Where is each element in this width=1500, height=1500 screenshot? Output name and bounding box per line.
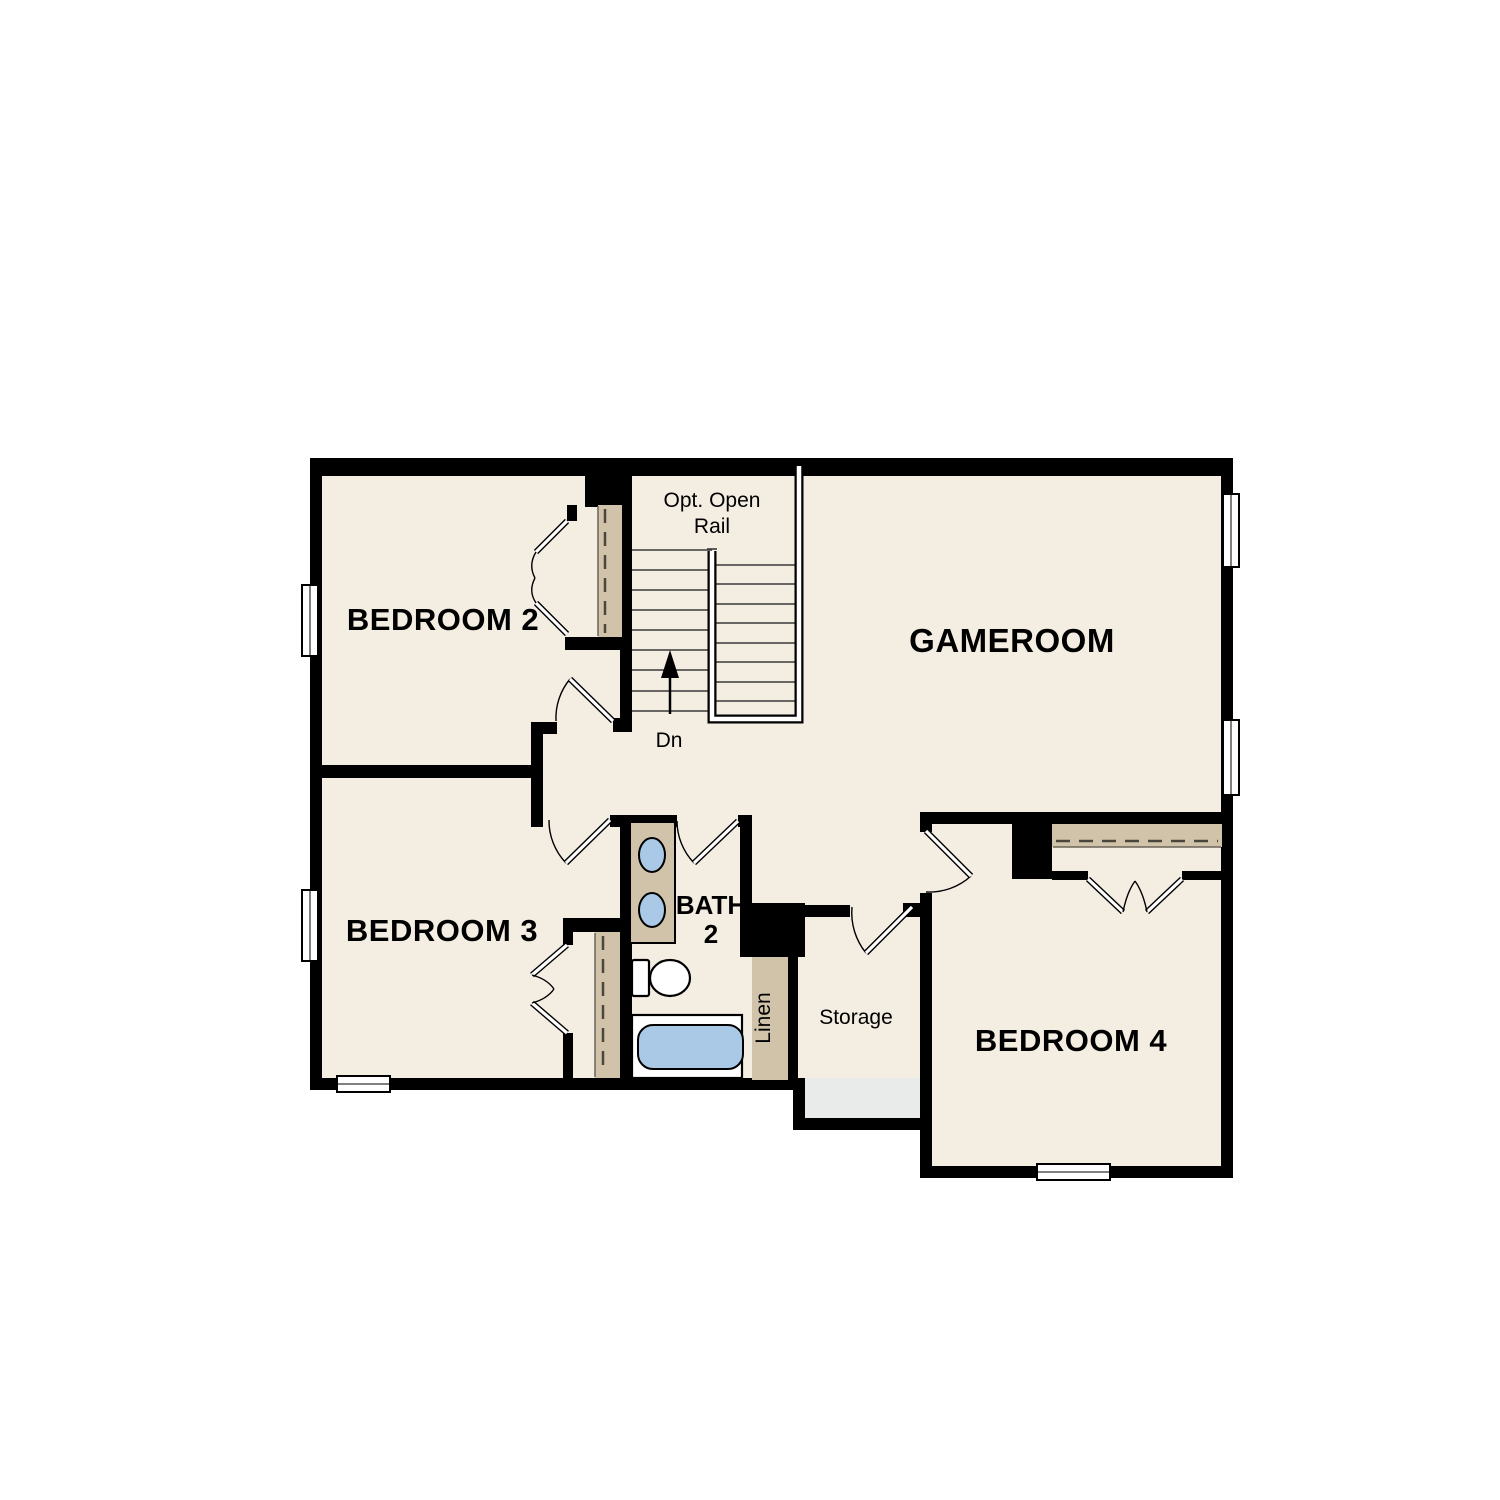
bedroom3-closet-shelf	[595, 932, 620, 1078]
window-bedroom3-left	[302, 890, 318, 961]
toilet-bowl	[650, 960, 690, 996]
wall-stair-west-lower	[620, 637, 632, 732]
wall-bedroom4-closet-column	[1012, 819, 1052, 879]
wall-storage-west-low	[793, 1078, 805, 1130]
wall-bedroom3-closet-jamb-bottom	[563, 1033, 573, 1078]
window-gameroom-right-upper	[1223, 494, 1239, 567]
toilet-tank	[632, 960, 649, 996]
window-bedroom4-bottom	[1037, 1164, 1110, 1180]
wall-bedroom2-3-divider	[310, 765, 543, 778]
stairs-direction-label: Dn	[656, 729, 683, 752]
wall-storage-top	[795, 905, 850, 917]
wall-top	[310, 458, 1233, 476]
gameroom-label: GAMEROOM	[909, 622, 1115, 659]
wall-bath-top-right	[738, 815, 752, 827]
stairs-note-line2: Rail	[694, 515, 730, 538]
bedroom4-closet-shelf	[1052, 824, 1222, 847]
floorplan-canvas: BEDROOM 2 BEDROOM 3 GAMEROOM BEDROOM 4 B…	[0, 0, 1500, 1500]
sink-top	[639, 838, 665, 872]
bedroom3-label: BEDROOM 3	[346, 913, 538, 948]
bath2-label-line2: 2	[704, 919, 718, 949]
bath2-label-line1: BATH	[676, 890, 746, 920]
wall-bedroom2-closet-bottom	[565, 637, 632, 650]
floor-storage-gray-patch	[805, 1078, 920, 1118]
storage-label: Storage	[819, 1006, 893, 1029]
linen-label: Linen	[752, 992, 775, 1043]
wall-hall-west	[531, 722, 543, 827]
wall-hall-jog	[543, 722, 557, 734]
wall-bedroom4-closet-stub-left	[1052, 871, 1088, 880]
window-bedroom3-bottom	[337, 1076, 390, 1092]
window-gameroom-right-lower	[1223, 720, 1239, 795]
bedroom2-label: BEDROOM 2	[347, 602, 539, 637]
wall-bedroom4-west-stub	[920, 812, 932, 832]
bathtub	[638, 1025, 743, 1069]
floorplan-svg: BEDROOM 2 BEDROOM 3 GAMEROOM BEDROOM 4 B…	[0, 0, 1500, 1500]
wall-bedroom3-closet-jamb-top	[563, 932, 573, 945]
wall-bedroom2-closet-jamb	[567, 505, 577, 521]
wall-bedroom4-top	[920, 812, 1233, 824]
wall-bedroom4-west	[920, 893, 932, 1178]
wall-bedroom2-closet-chunk	[585, 458, 632, 507]
stairs-note-line1: Opt. Open	[664, 489, 761, 512]
sink-bottom	[639, 893, 665, 927]
wall-stair-west-upper	[622, 505, 632, 655]
wall-linen-east	[788, 957, 798, 1082]
bedroom2-closet-shelf	[598, 505, 622, 637]
wall-bedroom4-closet-stub-right	[1182, 871, 1222, 880]
window-bedroom2-left	[302, 585, 318, 656]
wall-storage-bottom	[793, 1118, 932, 1130]
bedroom4-label: BEDROOM 4	[975, 1023, 1168, 1058]
wall-bedroom3-closet-top	[563, 918, 623, 932]
